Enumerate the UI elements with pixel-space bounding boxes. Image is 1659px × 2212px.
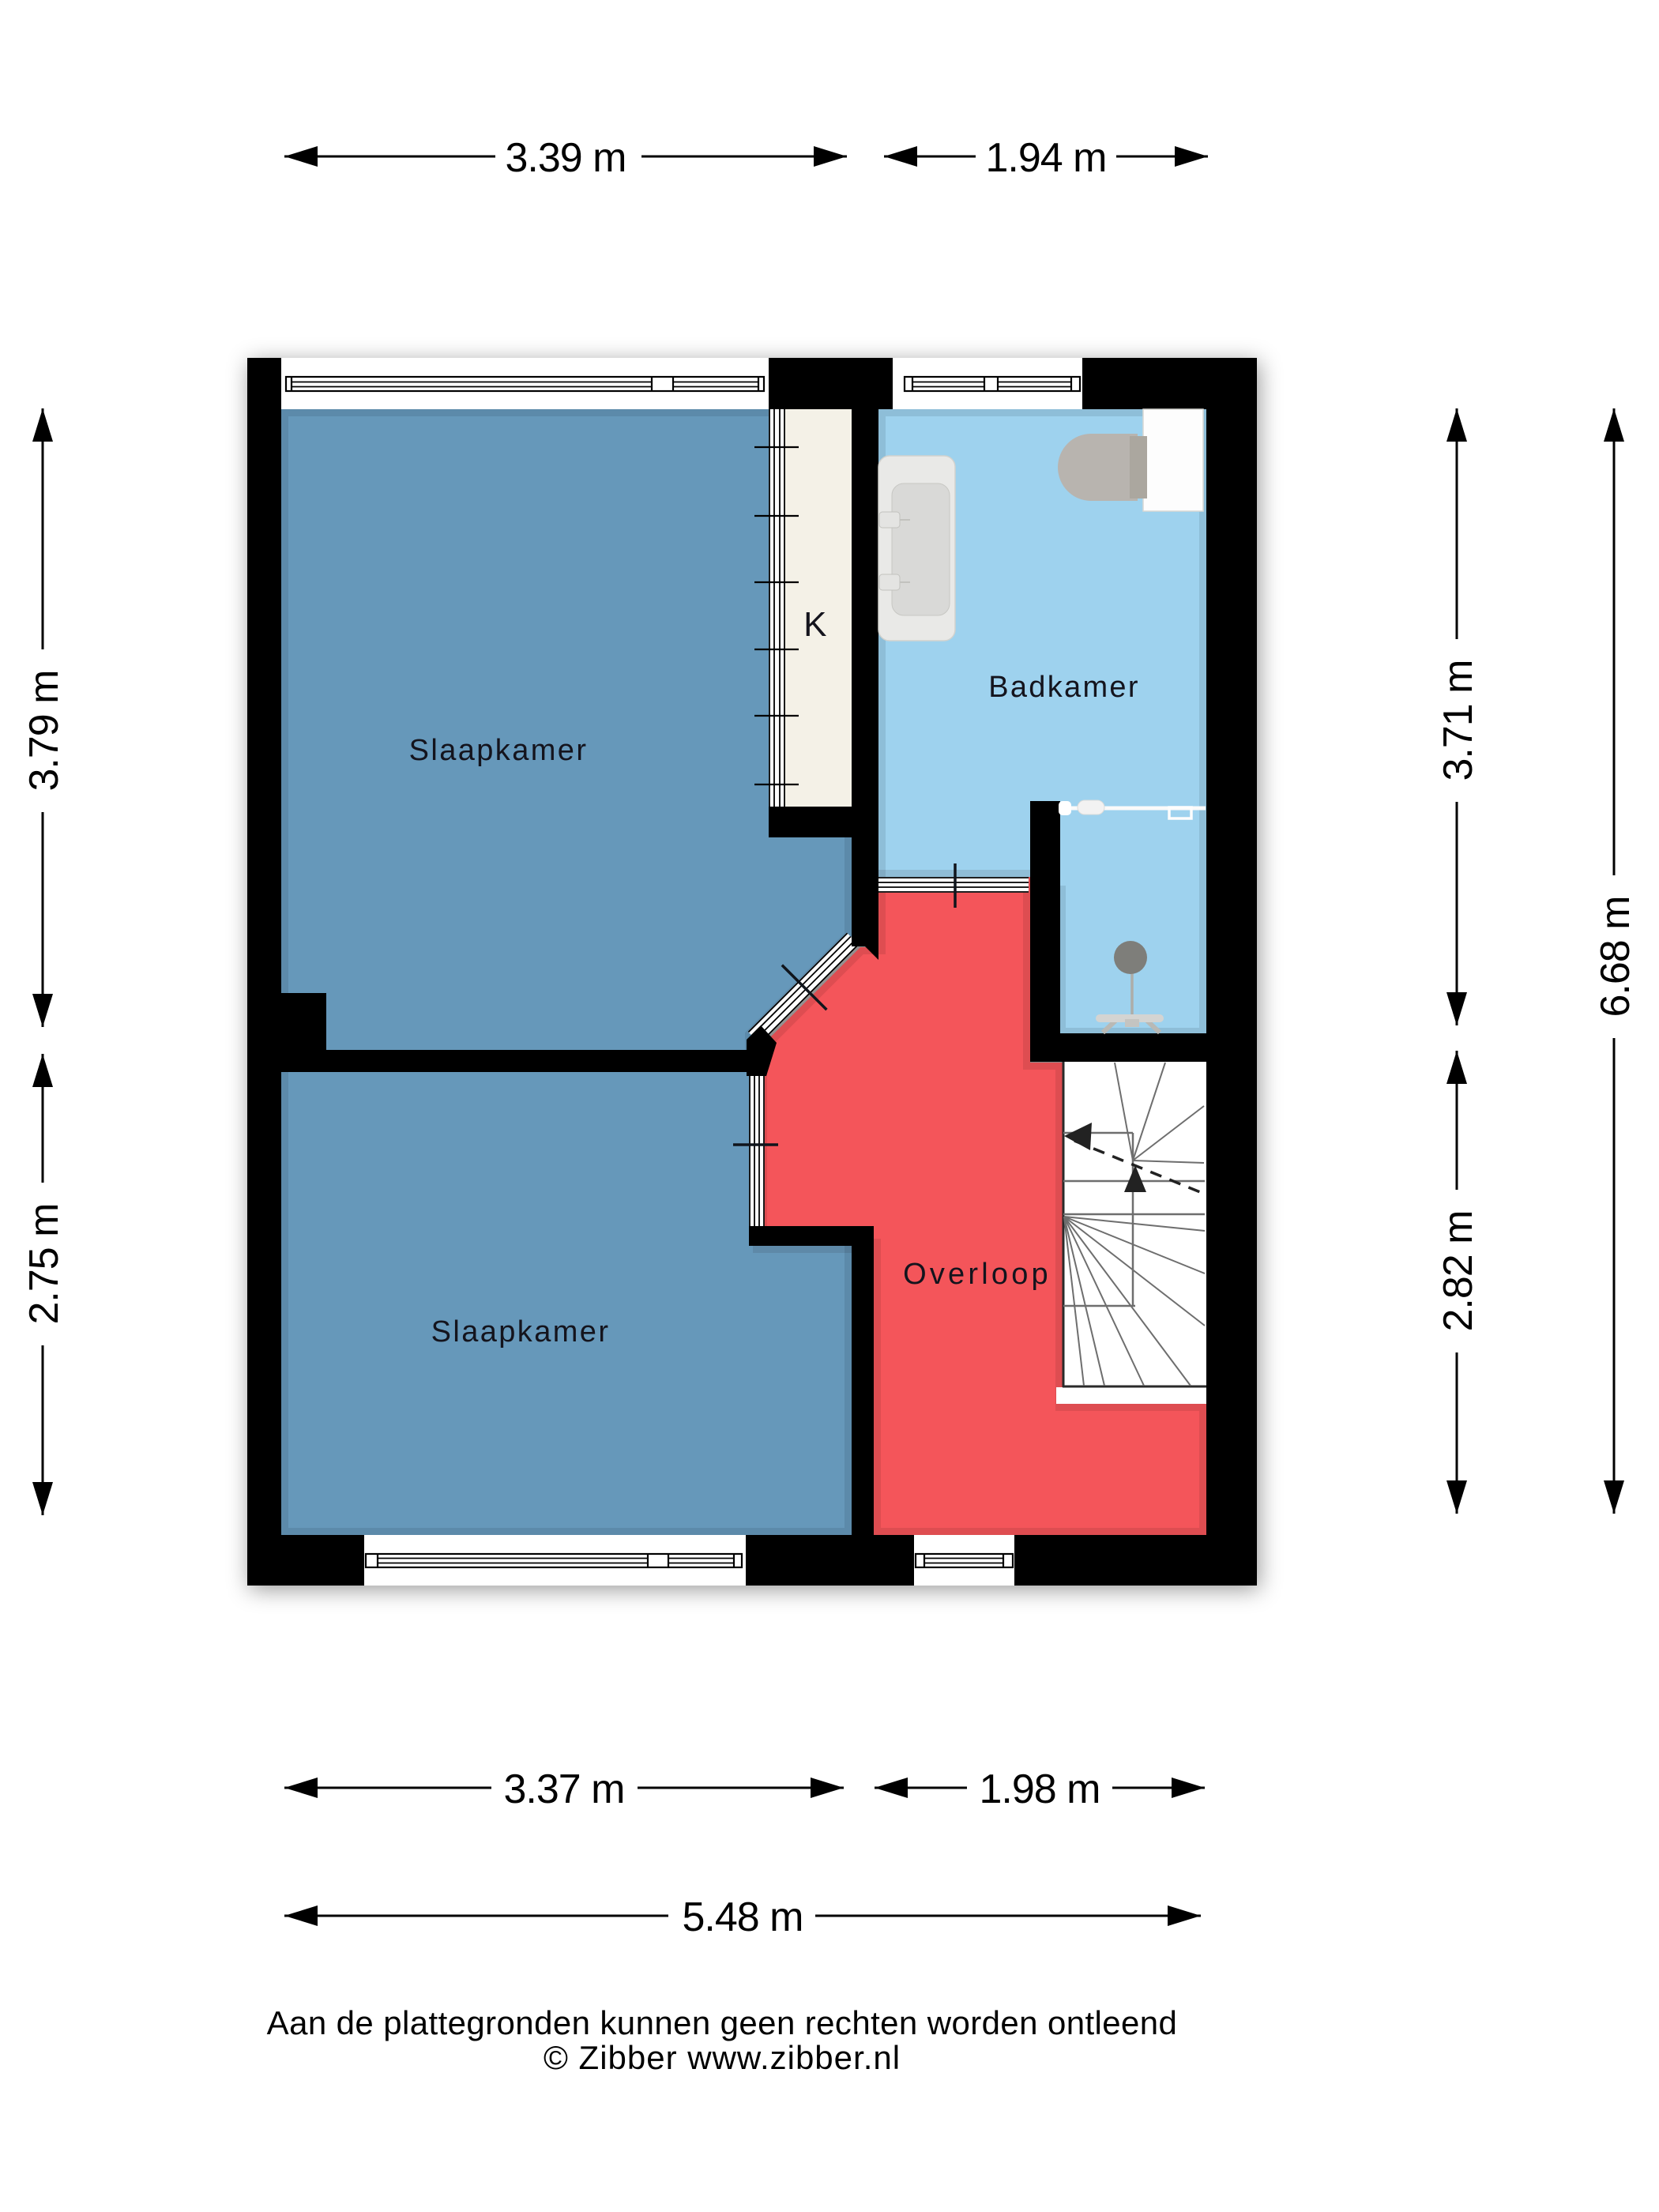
svg-text:2.75 m: 2.75 m [21,1204,67,1325]
svg-text:3.71 m: 3.71 m [1435,660,1481,781]
svg-text:Aan de plattegronden kunnen ge: Aan de plattegronden kunnen geen rechten… [267,2004,1178,2041]
svg-text:3.39 m: 3.39 m [506,135,626,181]
svg-text:Slaapkamer: Slaapkamer [431,1315,611,1349]
svg-text:1.94 m: 1.94 m [986,135,1107,181]
svg-text:3.37 m: 3.37 m [504,1766,625,1812]
svg-text:Overloop: Overloop [903,1258,1051,1291]
svg-text:6.68 m: 6.68 m [1593,897,1638,1018]
svg-text:3.79 m: 3.79 m [21,671,67,792]
svg-text:© Zibber www.zibber.nl: © Zibber www.zibber.nl [544,2039,901,2076]
svg-text:5.48 m: 5.48 m [683,1894,803,1940]
svg-text:Badkamer: Badkamer [988,671,1140,704]
svg-text:1.98 m: 1.98 m [980,1766,1100,1812]
svg-text:Slaapkamer: Slaapkamer [409,734,589,767]
svg-text:K: K [803,605,829,644]
svg-text:2.82 m: 2.82 m [1435,1211,1481,1332]
